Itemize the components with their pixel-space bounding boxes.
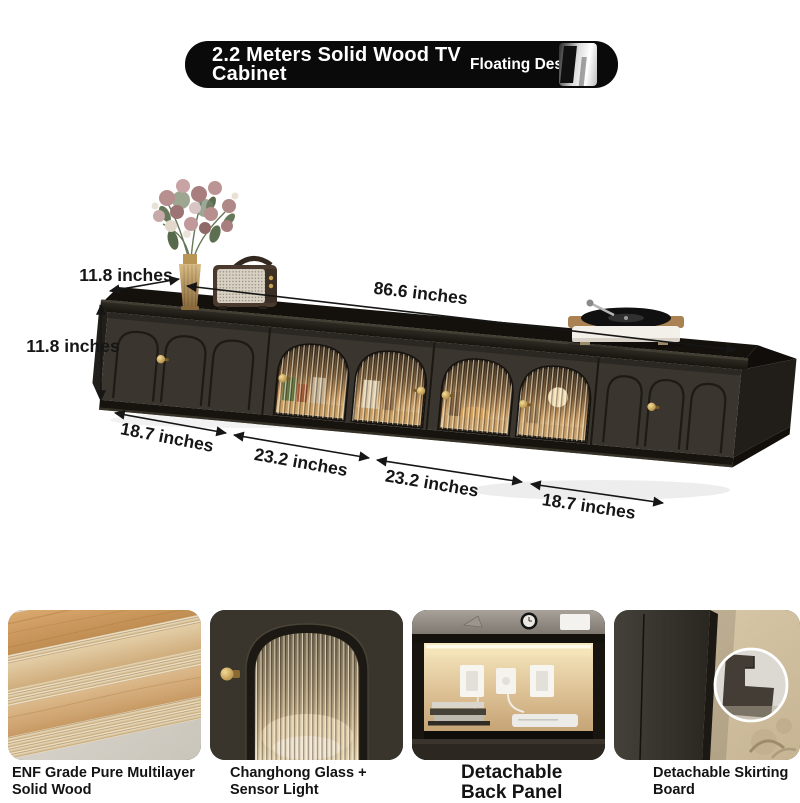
feature-label-line: Detachable Skirting [653, 765, 800, 782]
books [428, 702, 490, 726]
feature-label-line: Changhong Glass + [230, 765, 403, 782]
bottom-label-2: 23.2 inches [253, 444, 350, 480]
feature-label-line: Solid Wood [12, 782, 201, 799]
feature-image-back-panel [412, 610, 605, 760]
length-label: 86.6 inches [373, 278, 469, 309]
product-title: 2.2 Meters Solid Wood TV Cabinet [212, 46, 461, 84]
feature-card-back-panel: Detachable Back Panel [412, 610, 605, 803]
product-title-line2: Cabinet [212, 65, 461, 84]
feature-label-line: Board [653, 782, 800, 799]
feature-image-glass-door [210, 610, 403, 760]
feature-label-line: ENF Grade Pure Multilayer [12, 765, 201, 782]
feature-card-solid-wood: ENF Grade Pure Multilayer Solid Wood [8, 610, 201, 803]
bottom-label-3: 23.2 inches [384, 465, 481, 500]
feature-label: Changhong Glass + Sensor Light [230, 765, 403, 798]
feature-label: ENF Grade Pure Multilayer Solid Wood [12, 765, 201, 798]
depth-label: 11.8 inches [79, 265, 173, 285]
game-console [512, 714, 578, 727]
feature-card-glass: Changhong Glass + Sensor Light [210, 610, 403, 803]
glass-door-4 [516, 364, 592, 442]
feature-label-line: Sensor Light [230, 782, 403, 799]
banner-corner-image [559, 43, 597, 86]
product-scene: 11.8 inches 86.6 inches 11.8 inches 18.7… [0, 0, 800, 600]
glass-door-1 [274, 342, 350, 420]
feature-image-plywood [8, 610, 201, 760]
feature-label-line: Detachable [461, 763, 605, 783]
feature-label: Detachable Back Panel [461, 763, 605, 803]
feature-label: Detachable Skirting Board [653, 765, 800, 798]
feature-label-line: Back Panel [461, 783, 605, 803]
glass-door-2 [352, 349, 428, 427]
feature-card-skirting: Detachable Skirting Board [614, 610, 800, 803]
height-label: 11.8 inches [26, 336, 120, 356]
glass-door-3 [439, 357, 515, 435]
feature-image-skirting [614, 610, 800, 760]
feature-cards: ENF Grade Pure Multilayer Solid Wood [0, 610, 800, 803]
title-banner: 2.2 Meters Solid Wood TV Cabinet Floatin… [185, 41, 618, 88]
retro-speaker [213, 258, 277, 309]
